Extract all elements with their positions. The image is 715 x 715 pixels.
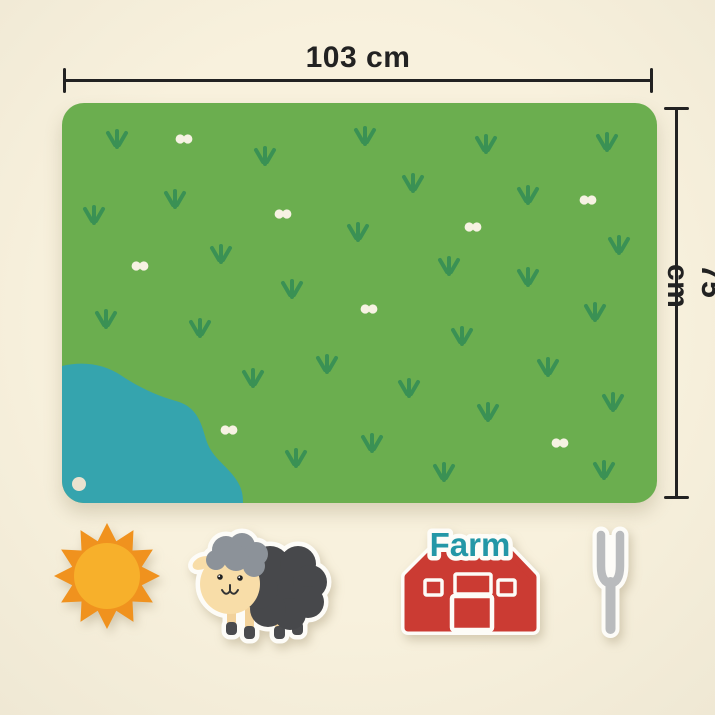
grass-tuft xyxy=(479,404,497,420)
grass-tuft xyxy=(595,462,613,478)
grass-tuft xyxy=(349,224,367,240)
grass-tuft xyxy=(453,328,471,344)
grass-tuft xyxy=(519,269,537,285)
grass-tuft xyxy=(539,359,557,375)
grass-tuft xyxy=(256,148,274,164)
grass-tuft xyxy=(244,370,262,386)
white-dot xyxy=(282,209,291,218)
white-dot xyxy=(183,134,192,143)
barn-sticker: Farm xyxy=(402,514,542,646)
grass-tuft xyxy=(598,134,616,150)
grass-tuft xyxy=(610,237,628,253)
white-dot xyxy=(587,195,596,204)
play-mat-art xyxy=(62,103,657,503)
grass-tuft xyxy=(85,207,103,223)
pond xyxy=(62,364,243,503)
grass-tuft xyxy=(586,304,604,320)
grass-tuft xyxy=(435,464,453,480)
grass-tuft xyxy=(604,394,622,410)
farm-label: Farm xyxy=(430,526,511,563)
white-dot xyxy=(472,222,481,231)
grass-tuft xyxy=(404,175,422,191)
grass-tuft xyxy=(287,450,305,466)
grass-tuft xyxy=(363,435,381,451)
barn-door xyxy=(452,596,492,630)
grass-tuft xyxy=(356,128,374,144)
height-dimension-label: 75 cm xyxy=(678,264,710,344)
white-dot xyxy=(368,304,377,313)
grass-tuft xyxy=(519,187,537,203)
playmat-dimension-diagram: 103 cm 75 cm xyxy=(0,0,715,715)
grass-tuft xyxy=(212,246,230,262)
dot-pattern xyxy=(132,134,597,447)
grass-tuft xyxy=(97,311,115,327)
sun-sticker xyxy=(52,521,162,631)
grass-tuft xyxy=(191,320,209,336)
snap-button xyxy=(72,477,86,491)
grass-tuft xyxy=(283,281,301,297)
grass-tuft xyxy=(166,191,184,207)
grass-tuft xyxy=(440,258,458,274)
play-mat xyxy=(62,103,657,503)
grass-tuft xyxy=(318,356,336,372)
sheep-sticker xyxy=(190,524,328,652)
white-dot xyxy=(228,425,237,434)
grass-tuft xyxy=(477,136,495,152)
width-dimension-line xyxy=(63,79,653,82)
grass-tuft xyxy=(400,380,418,396)
white-dot xyxy=(139,261,148,270)
fork-sticker xyxy=(589,528,634,638)
sun-disc xyxy=(74,543,140,609)
white-dot xyxy=(559,438,568,447)
width-dimension-label: 103 cm xyxy=(63,41,653,75)
grass-tuft xyxy=(108,131,126,147)
